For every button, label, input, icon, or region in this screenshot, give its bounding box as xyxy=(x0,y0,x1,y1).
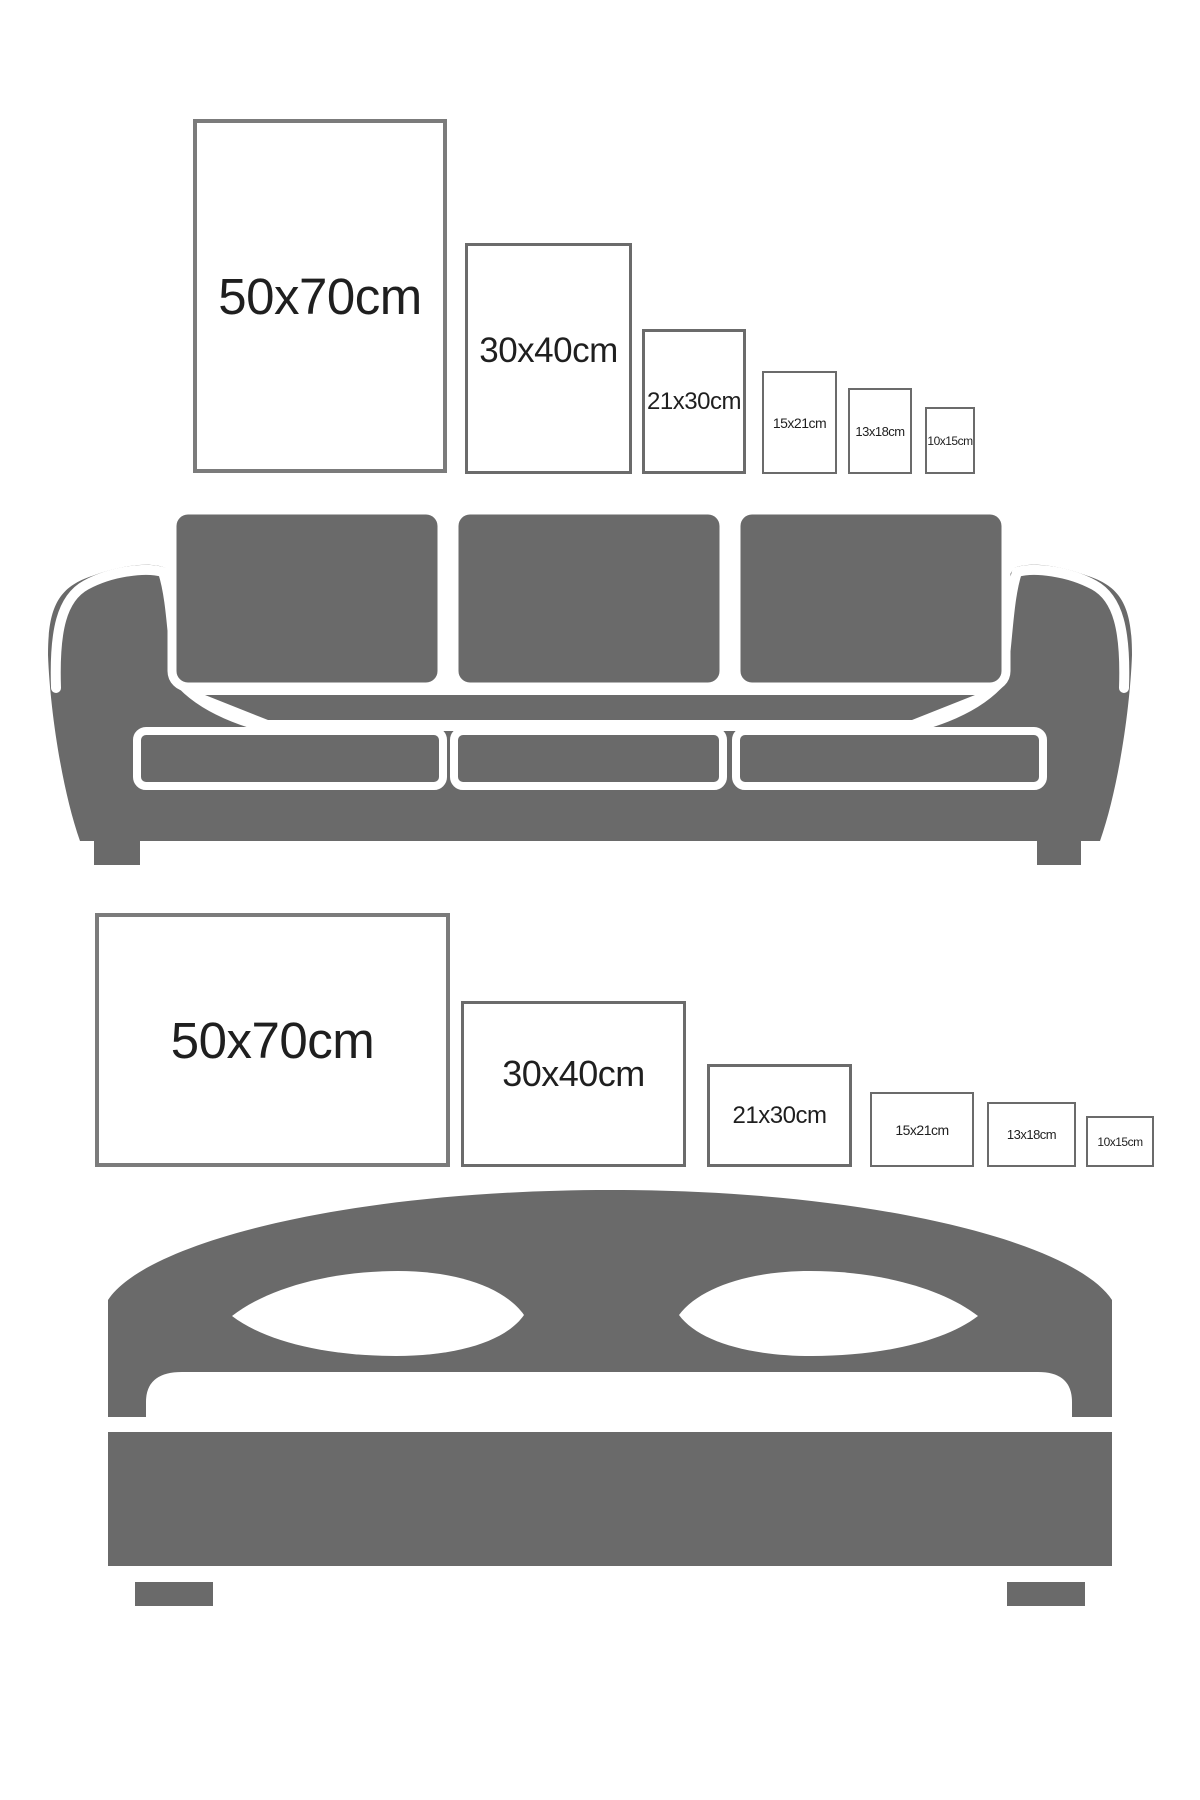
sofa-seat-deck xyxy=(205,695,975,720)
bed-foot-left xyxy=(135,1582,213,1606)
sofa-seat-cushion-left xyxy=(137,731,443,786)
bed-foot-right xyxy=(1007,1582,1085,1606)
sofa-leg-left xyxy=(94,841,140,865)
sofa-back-cushion-left xyxy=(172,510,442,687)
bed-base xyxy=(108,1432,1112,1566)
sofa-back-cushion-middle xyxy=(454,510,724,687)
size-guide-image: 50x70cm 30x40cm 21x30cm 15x21cm 13x18cm … xyxy=(0,0,1200,1800)
sofa-illustration xyxy=(48,510,1132,865)
sofa-seat-cushion-middle xyxy=(454,731,723,786)
furniture-illustrations xyxy=(0,0,1200,1800)
sofa-leg-right xyxy=(1037,841,1081,865)
bed-illustration xyxy=(108,1190,1112,1606)
sofa-back-cushion-right xyxy=(736,510,1006,687)
sofa-seat-cushion-right xyxy=(736,731,1043,786)
